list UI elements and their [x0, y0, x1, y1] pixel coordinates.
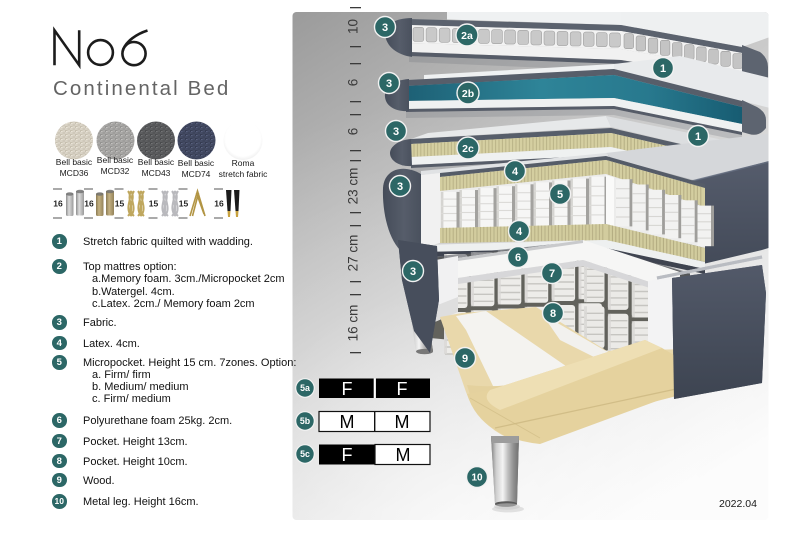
- svg-text:27 cm: 27 cm: [346, 235, 361, 272]
- svg-text:9: 9: [462, 353, 468, 365]
- svg-text:6: 6: [346, 79, 361, 87]
- svg-text:1: 1: [660, 63, 666, 75]
- svg-text:10: 10: [346, 19, 361, 34]
- svg-text:2c: 2c: [462, 143, 474, 155]
- svg-text:M: M: [340, 412, 355, 432]
- svg-text:3: 3: [382, 22, 388, 34]
- svg-text:15: 15: [179, 199, 189, 209]
- svg-text:16 cm: 16 cm: [346, 305, 361, 342]
- svg-text:F: F: [342, 445, 353, 465]
- svg-text:6: 6: [346, 128, 361, 136]
- svg-text:M: M: [395, 412, 410, 432]
- svg-text:F: F: [397, 379, 408, 399]
- svg-text:16: 16: [53, 199, 63, 209]
- svg-text:5: 5: [557, 189, 563, 201]
- svg-text:3: 3: [393, 126, 399, 138]
- svg-text:2b: 2b: [462, 88, 474, 100]
- svg-text:M: M: [396, 445, 411, 465]
- svg-text:7: 7: [549, 268, 555, 280]
- svg-text:23 cm: 23 cm: [346, 168, 361, 205]
- svg-text:15: 15: [149, 199, 159, 209]
- svg-text:3: 3: [397, 181, 403, 193]
- svg-text:F: F: [342, 379, 353, 399]
- svg-text:16: 16: [214, 199, 224, 209]
- svg-text:3: 3: [410, 266, 416, 278]
- svg-text:16: 16: [84, 199, 94, 209]
- svg-text:2a: 2a: [461, 30, 473, 42]
- svg-text:6: 6: [515, 252, 521, 264]
- svg-text:10: 10: [471, 473, 483, 484]
- svg-text:4: 4: [512, 166, 519, 178]
- svg-text:5b: 5b: [300, 416, 311, 426]
- svg-text:2022.04: 2022.04: [719, 498, 757, 510]
- svg-text:15: 15: [115, 199, 125, 209]
- svg-text:4: 4: [516, 226, 523, 238]
- svg-text:5a: 5a: [300, 383, 310, 393]
- svg-text:8: 8: [550, 308, 556, 320]
- svg-text:3: 3: [386, 78, 392, 90]
- svg-text:5c: 5c: [300, 449, 310, 459]
- svg-text:1: 1: [695, 131, 701, 143]
